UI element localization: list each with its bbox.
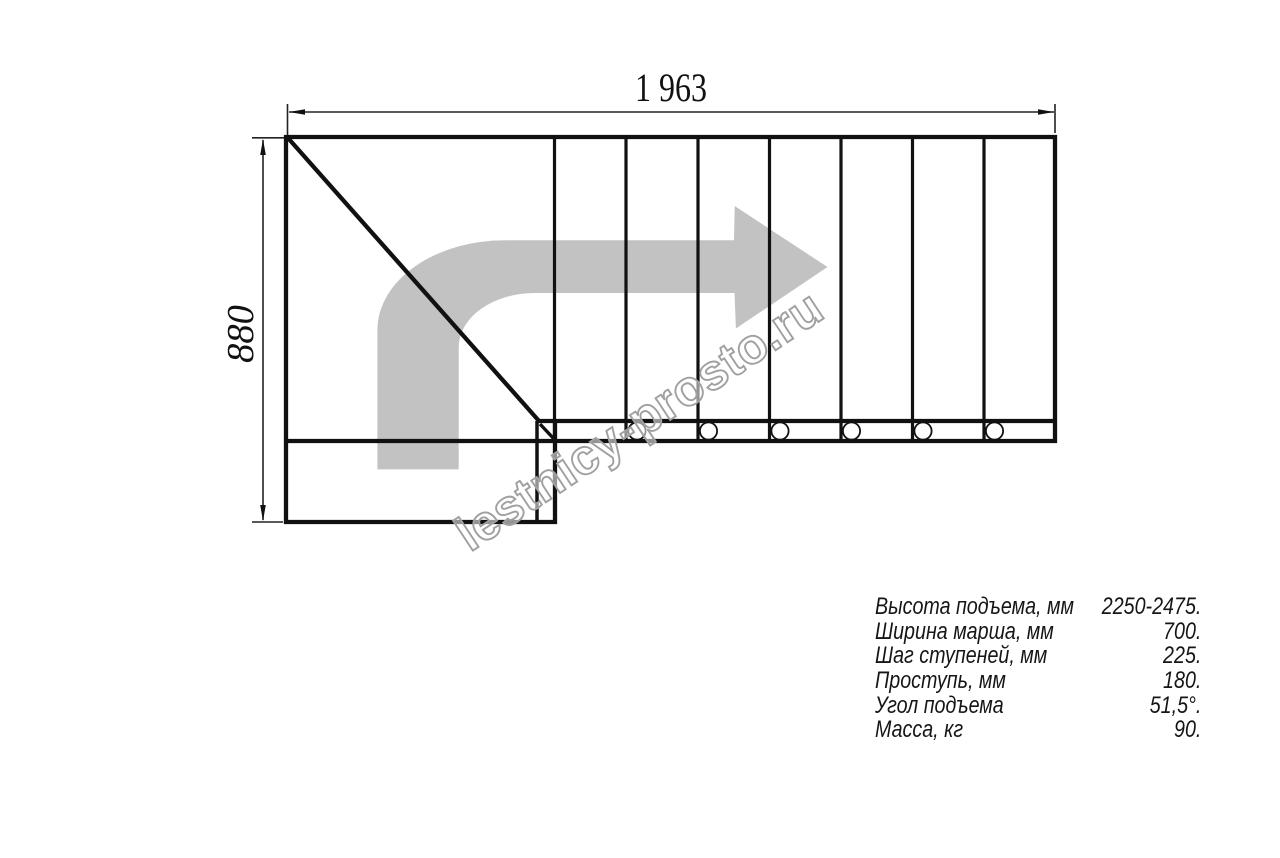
svg-text:880: 880 [220,305,262,363]
svg-text:1 963: 1 963 [635,66,707,110]
